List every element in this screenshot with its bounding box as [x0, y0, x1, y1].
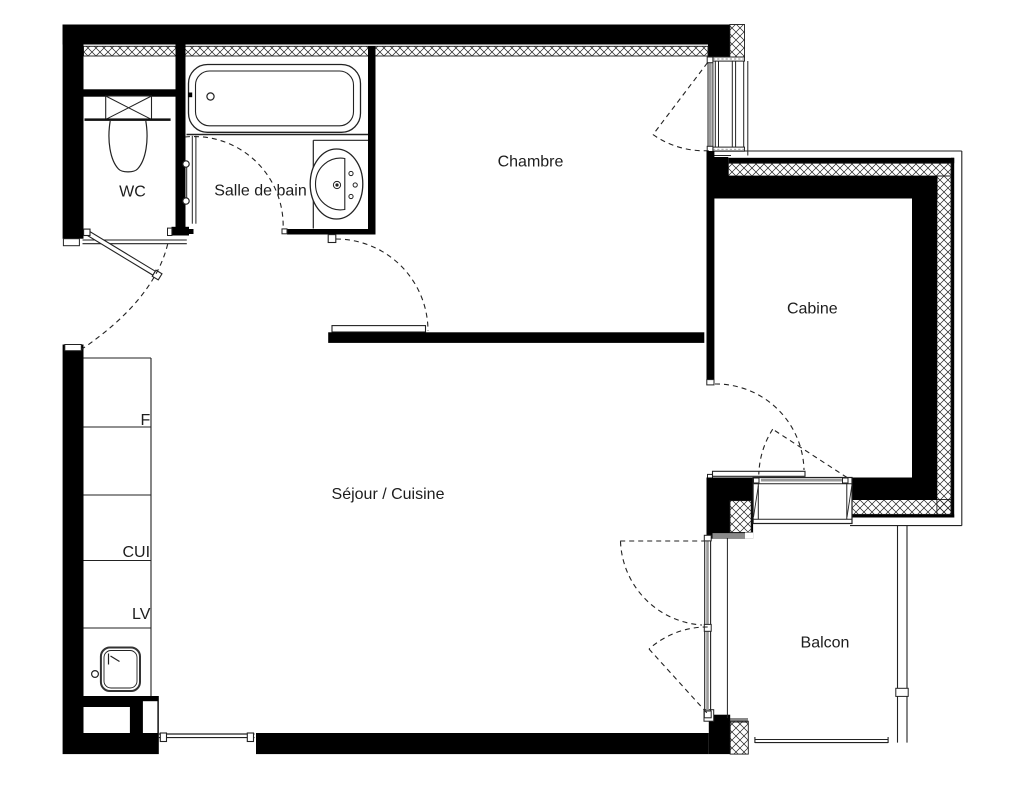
- svg-text:WC: WC: [119, 184, 146, 201]
- svg-text:F: F: [141, 412, 151, 429]
- svg-text:LV: LV: [132, 606, 151, 623]
- svg-text:Balcon: Balcon: [801, 635, 850, 652]
- svg-text:Séjour / Cuisine: Séjour / Cuisine: [332, 486, 445, 503]
- svg-text:Salle de bain: Salle de bain: [214, 183, 307, 200]
- svg-text:Cabine: Cabine: [787, 301, 838, 318]
- svg-text:Chambre: Chambre: [498, 154, 564, 171]
- svg-text:CUI: CUI: [123, 544, 151, 561]
